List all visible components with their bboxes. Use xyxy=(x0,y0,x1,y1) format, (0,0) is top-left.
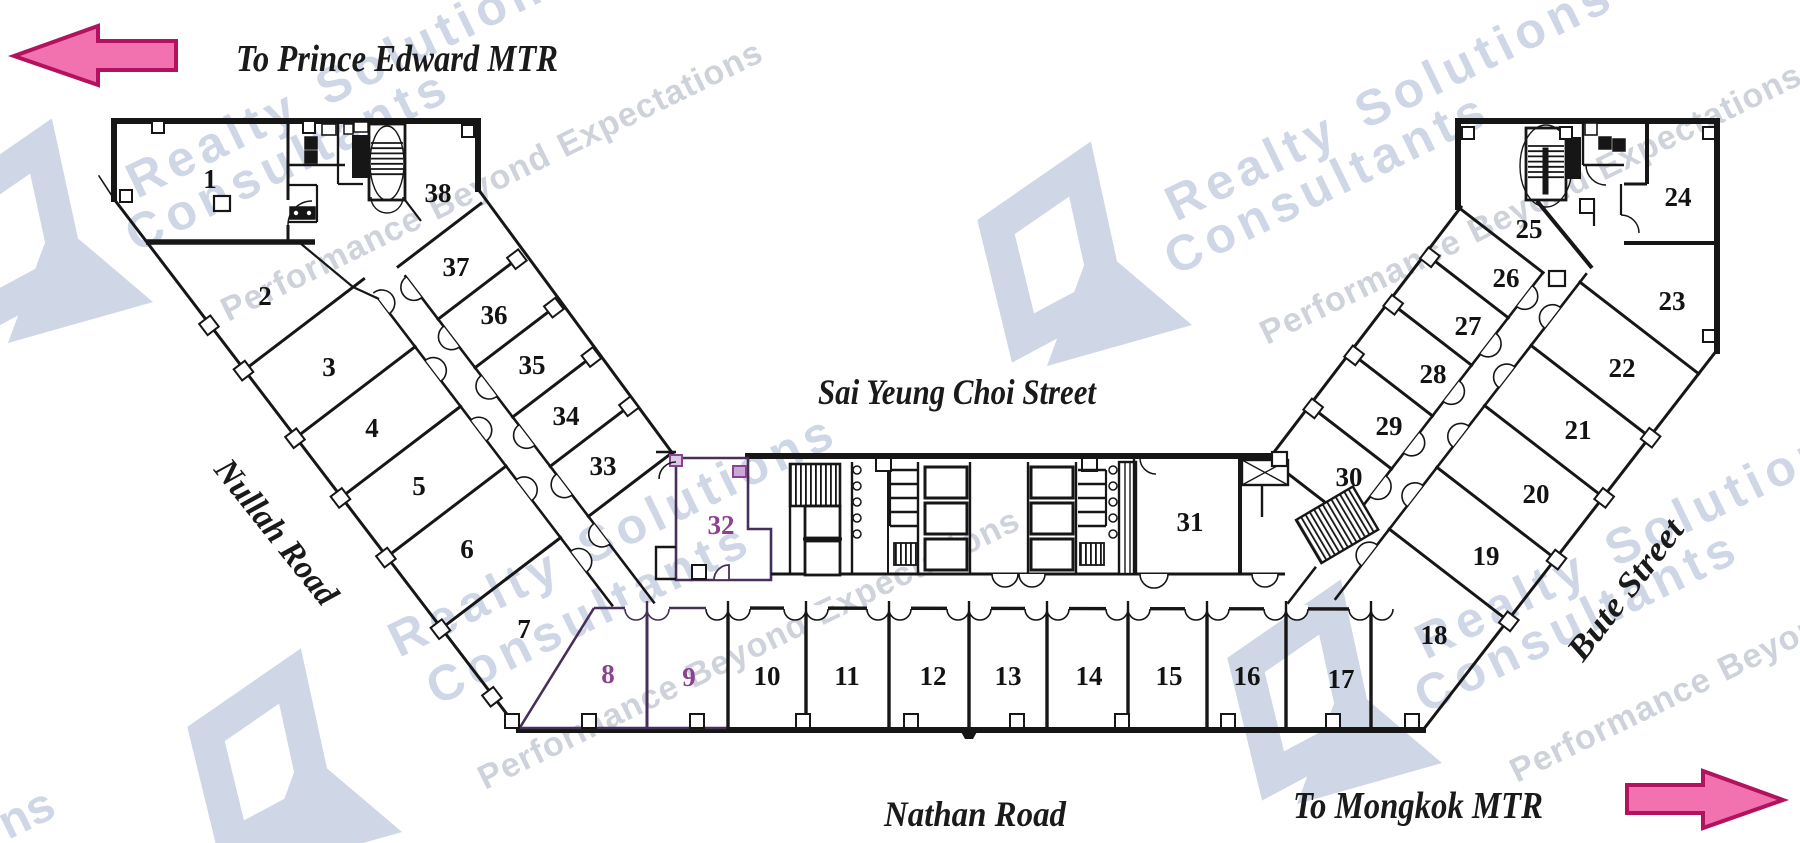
svg-text:10: 10 xyxy=(754,661,781,691)
svg-text:Sai Yeung Choi Street: Sai Yeung Choi Street xyxy=(818,372,1097,412)
svg-text:25: 25 xyxy=(1516,214,1543,244)
svg-text:14: 14 xyxy=(1076,661,1103,691)
svg-text:7: 7 xyxy=(517,614,531,644)
svg-text:5: 5 xyxy=(412,471,426,501)
svg-text:13: 13 xyxy=(995,661,1022,691)
svg-text:3: 3 xyxy=(322,352,336,382)
svg-text:18: 18 xyxy=(1421,620,1448,650)
svg-text:11: 11 xyxy=(834,661,860,691)
svg-text:2: 2 xyxy=(258,281,272,311)
svg-text:29: 29 xyxy=(1376,411,1403,441)
svg-text:28: 28 xyxy=(1420,359,1447,389)
svg-text:21: 21 xyxy=(1565,415,1592,445)
svg-text:Nathan Road: Nathan Road xyxy=(883,794,1067,834)
svg-text:15: 15 xyxy=(1156,661,1183,691)
svg-text:32: 32 xyxy=(708,510,735,540)
svg-text:4: 4 xyxy=(365,413,379,443)
svg-text:38: 38 xyxy=(425,178,452,208)
svg-text:To Mongkok MTR: To Mongkok MTR xyxy=(1293,785,1543,827)
svg-text:23: 23 xyxy=(1659,286,1686,316)
svg-text:To Prince Edward MTR: To Prince Edward MTR xyxy=(236,38,558,80)
svg-text:27: 27 xyxy=(1455,311,1482,341)
svg-text:34: 34 xyxy=(553,401,580,431)
svg-text:22: 22 xyxy=(1609,353,1636,383)
svg-text:26: 26 xyxy=(1493,263,1520,293)
svg-text:30: 30 xyxy=(1336,462,1363,492)
svg-text:33: 33 xyxy=(590,451,617,481)
svg-text:31: 31 xyxy=(1177,507,1204,537)
svg-text:24: 24 xyxy=(1665,182,1692,212)
svg-text:6: 6 xyxy=(460,534,474,564)
svg-text:37: 37 xyxy=(443,252,470,282)
svg-text:12: 12 xyxy=(920,661,947,691)
svg-text:17: 17 xyxy=(1328,664,1355,694)
svg-text:16: 16 xyxy=(1234,661,1261,691)
svg-text:36: 36 xyxy=(481,300,508,330)
svg-text:20: 20 xyxy=(1523,479,1550,509)
svg-text:1: 1 xyxy=(203,164,217,194)
svg-text:9: 9 xyxy=(682,662,696,692)
svg-text:35: 35 xyxy=(519,350,546,380)
svg-text:8: 8 xyxy=(601,659,615,689)
svg-text:19: 19 xyxy=(1473,541,1500,571)
